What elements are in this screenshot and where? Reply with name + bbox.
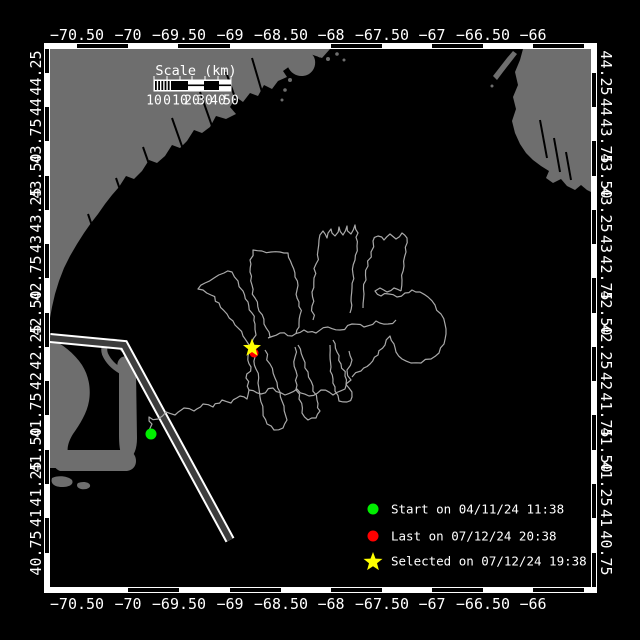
lat-tick-label: 42 [597,372,615,390]
lon-tick-label: −66.50 [456,595,510,613]
scale-bar-hatch [161,81,163,90]
lon-tick-label: −67.50 [355,595,409,613]
lon-tick-label: −69.50 [152,595,206,613]
lon-tick-label: −67 [418,595,445,613]
scale-bar-midline [219,85,231,87]
frame-band-segment [45,107,49,141]
lat-tick-label: 44.25 [597,50,615,95]
lon-tick-label: −69.50 [152,26,206,44]
lon-tick-label: −68.50 [254,26,308,44]
frame-band-segment [331,588,382,592]
lon-tick-label: −68 [317,595,344,613]
scale-bar-hatch [158,81,160,90]
lat-tick-label: 42.25 [27,324,45,369]
legend-label: Last on 07/12/24 20:38 [391,529,557,544]
lon-tick-label: −70.50 [50,26,104,44]
scale-bar-hatch [165,81,167,90]
lat-tick-label: 42.25 [597,324,615,369]
scale-bar-title: Scale (km) [155,63,236,79]
frame-band-segment [592,73,596,107]
lat-tick-label: 41.25 [597,461,615,506]
islet [491,85,494,88]
lat-tick-label: 43.25 [597,187,615,232]
lat-tick-label: 44 [27,98,45,116]
legend-marker-circle [368,504,379,515]
frame-band-segment [592,210,596,244]
lat-tick-label: 41.25 [27,461,45,506]
islet [326,57,330,61]
frame-band-segment [45,313,49,347]
frame-band-segment [128,588,179,592]
lon-tick-label: −66 [519,26,546,44]
lon-tick-label: −68.50 [254,595,308,613]
scale-bar-midline [188,85,204,87]
map-canvas [0,0,640,640]
lat-tick-label: 40.75 [27,530,45,575]
islet [288,78,292,82]
frame-band-segment [592,415,596,450]
lat-tick-label: 41 [597,509,615,527]
frame-band-segment [432,588,483,592]
lat-tick-label: 41 [27,509,45,527]
lat-tick-label: 43 [27,235,45,253]
frame-band-segment [45,49,49,73]
lat-tick-label: 43.25 [27,187,45,232]
lat-tick-label: 42 [27,372,45,390]
scale-bar-segment [204,81,219,90]
frame-band-segment [45,450,49,484]
lon-tick-label: −66 [519,595,546,613]
scale-bar-hatch [155,81,157,90]
islet [281,99,284,102]
frame-band-segment [45,244,49,278]
lon-tick-label: −69 [216,595,243,613]
frame-band-segment [592,553,596,587]
land-polygon [77,482,90,489]
frame-band-segment [77,44,128,48]
scale-bar-number: 50 [223,94,239,109]
lon-tick-label: −70.50 [50,595,104,613]
frame-band-segment [45,518,49,553]
scale-bar-hatch [168,81,170,90]
lon-tick-label: −70 [114,26,141,44]
frame-band-segment [533,588,584,592]
lat-tick-label: 40.75 [597,530,615,575]
frame-band-segment [45,176,49,210]
frame-band-segment [533,44,584,48]
scale-bar-segment [172,81,188,90]
glider-track-map: Scale (km) −70.50−70−69.50−69−68.50−68−6… [0,0,640,640]
lat-tick-label: 43 [597,235,615,253]
frame-band-segment [592,347,596,381]
lon-tick-label: −70 [114,595,141,613]
lon-tick-label: −68 [317,26,344,44]
legend-label: Selected on 07/12/24 19:38 [391,554,587,569]
frame-band [44,587,597,593]
lat-tick-label: 44 [597,98,615,116]
islet [343,59,346,62]
frame-band-segment [592,141,596,176]
frame-band-segment [592,484,596,518]
lon-tick-label: −67 [418,26,445,44]
lon-tick-label: −66.50 [456,26,510,44]
scale-bar-tick [154,76,155,80]
legend-label: Start on 04/11/24 11:38 [391,502,564,517]
frame-band-segment [45,381,49,415]
frame-band-segment [331,44,382,48]
legend-marker-circle [368,531,379,542]
lon-tick-label: −69 [216,26,243,44]
lon-tick-label: −67.50 [355,26,409,44]
islet [283,88,287,92]
frame-band-segment [230,588,281,592]
frame-band-segment [432,44,483,48]
islet [318,53,323,58]
scale-bar-number: 0 [163,94,171,109]
frame-band-segment [592,278,596,313]
lat-tick-label: 44.25 [27,50,45,95]
frame-band-segment [178,44,230,48]
start-position-marker[interactable] [146,429,157,440]
islet [335,52,339,56]
scale-bar-number: 10 [146,94,162,109]
